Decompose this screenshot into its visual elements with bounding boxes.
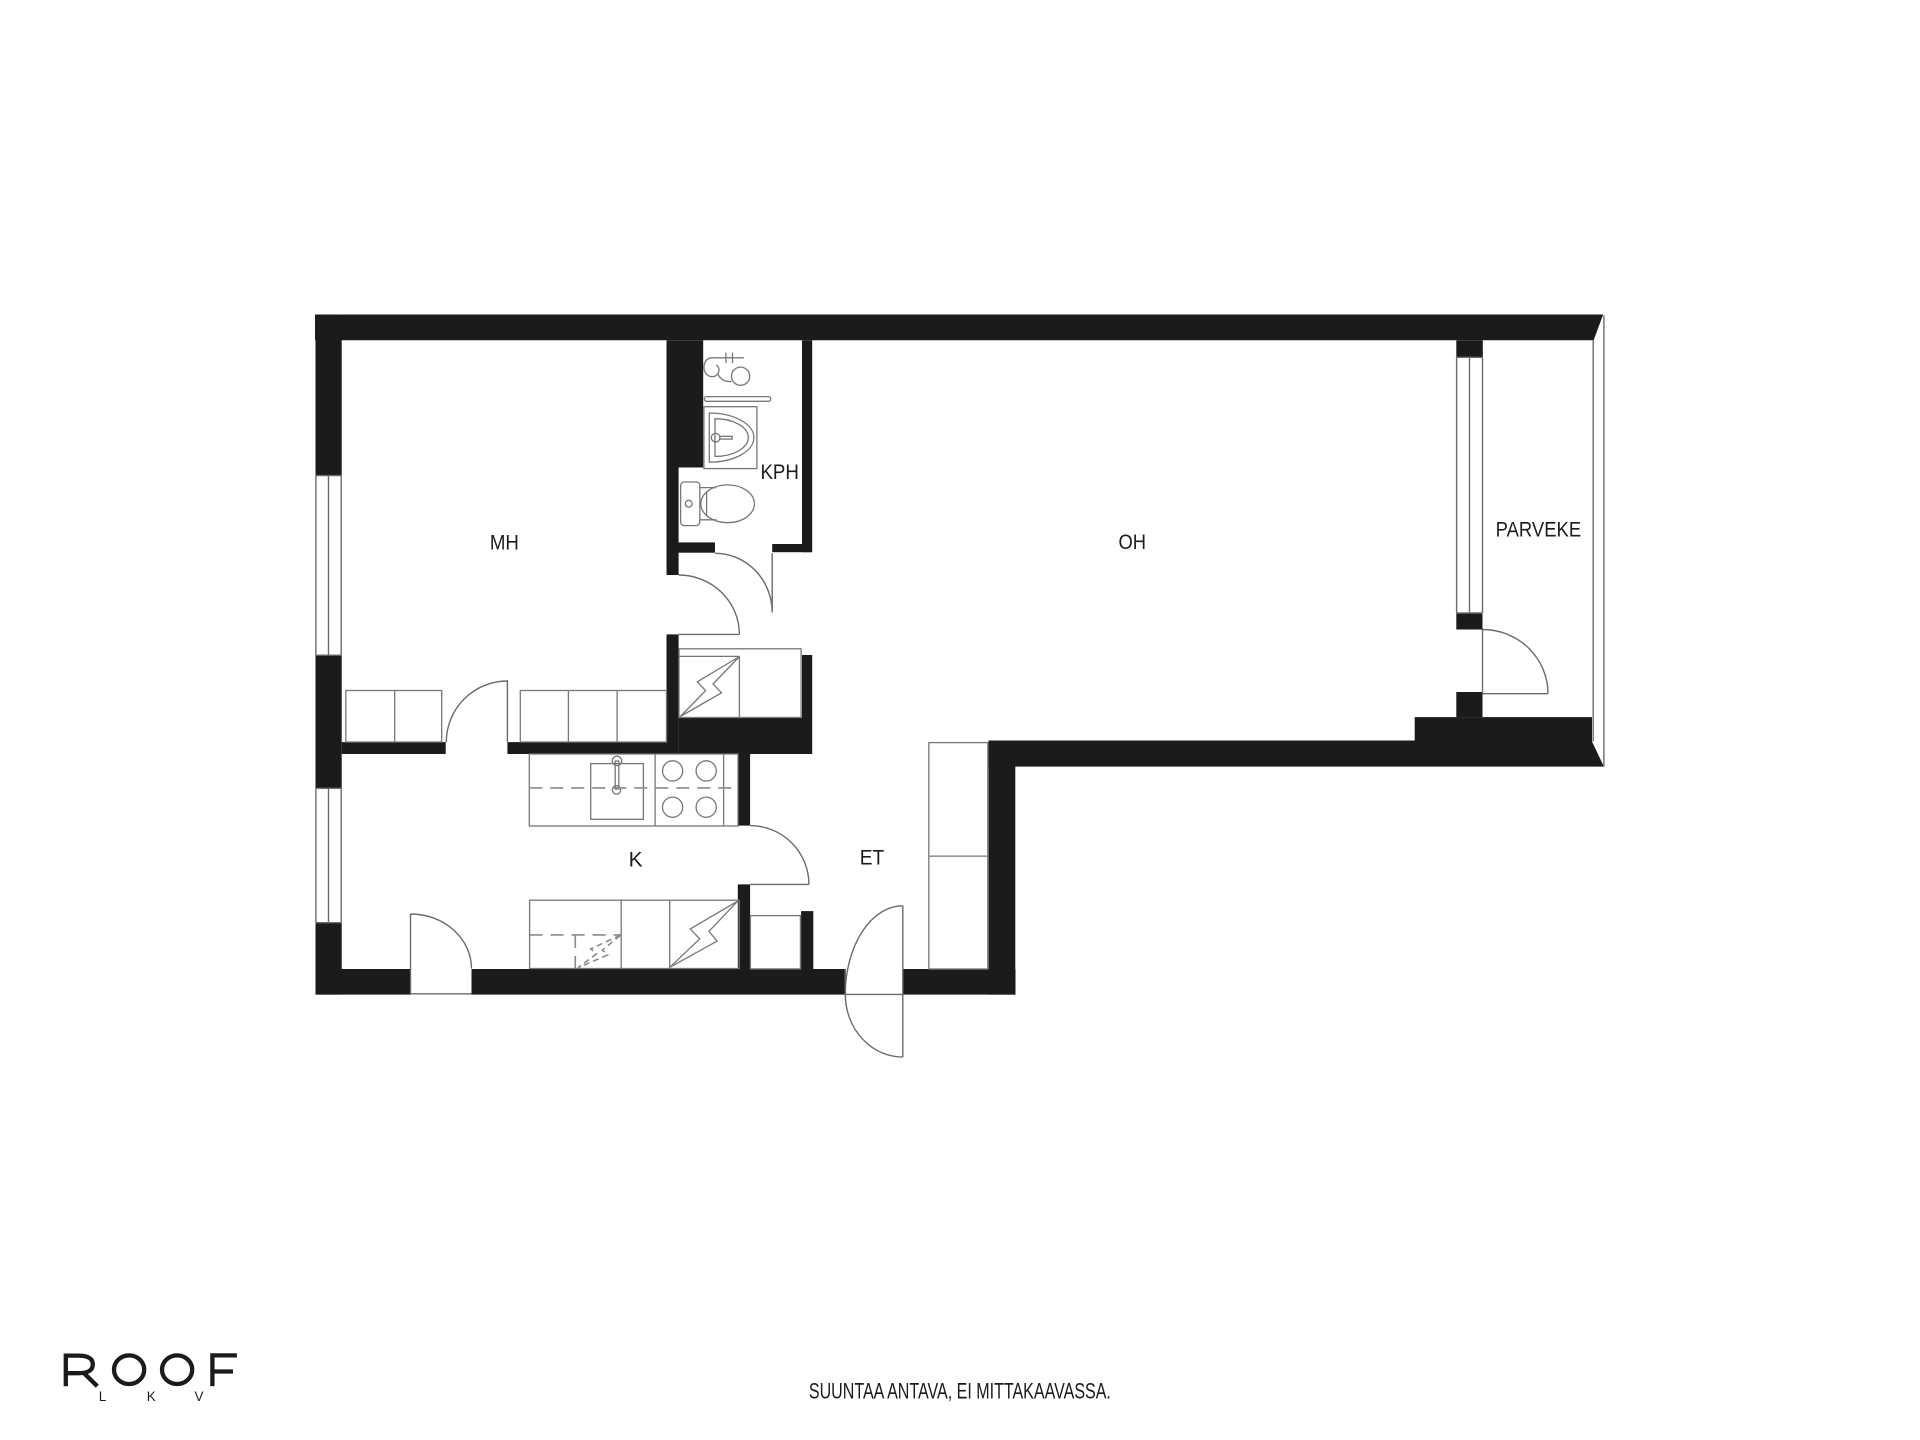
svg-text:K: K <box>147 1389 156 1404</box>
svg-text:MH: MH <box>490 531 519 554</box>
svg-text:ET: ET <box>860 847 885 870</box>
svg-text:PARVEKE: PARVEKE <box>1496 518 1582 541</box>
svg-text:KPH: KPH <box>760 461 799 484</box>
svg-text:K: K <box>629 849 643 872</box>
svg-text:OH: OH <box>1118 531 1146 554</box>
svg-text:L: L <box>99 1389 107 1404</box>
svg-text:SUUNTAA ANTAVA, EI MITTAKAAVAS: SUUNTAA ANTAVA, EI MITTAKAAVASSA. <box>809 1378 1111 1403</box>
svg-text:V: V <box>194 1389 203 1404</box>
